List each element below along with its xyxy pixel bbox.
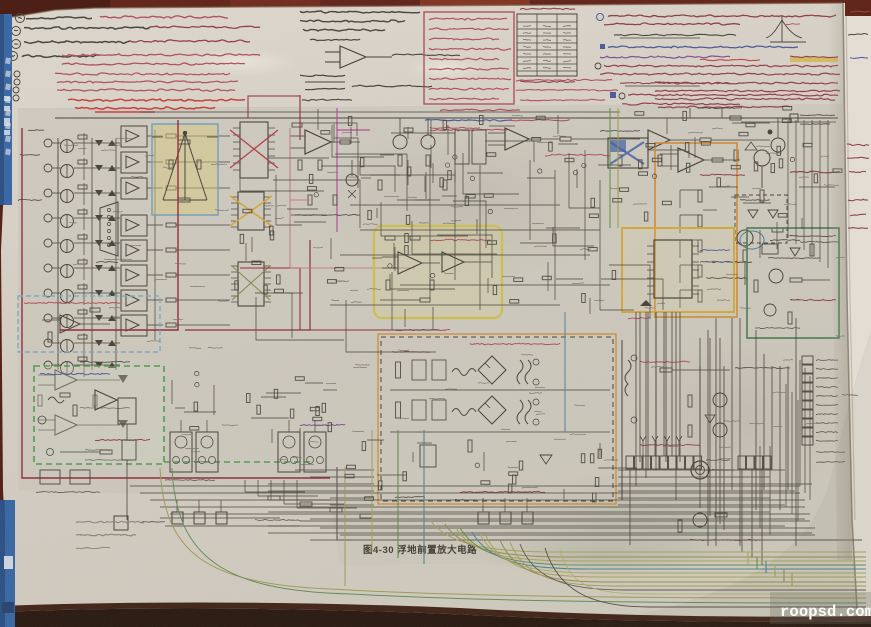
svg-text:roopsd.com: roopsd.com [780, 603, 871, 621]
